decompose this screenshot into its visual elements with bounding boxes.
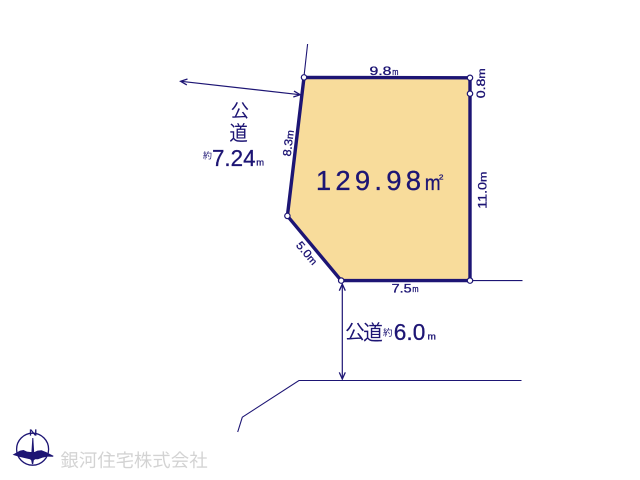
svg-text:m: m xyxy=(428,332,436,343)
svg-text:11.0m: 11.0m xyxy=(478,172,490,209)
svg-text:7.5: 7.5 xyxy=(392,283,412,295)
svg-text:129.98: 129.98 xyxy=(316,165,425,196)
svg-text:7.24: 7.24 xyxy=(212,145,256,171)
svg-text:N: N xyxy=(29,428,37,438)
svg-text:9.8: 9.8 xyxy=(370,66,392,78)
svg-text:m: m xyxy=(412,284,418,294)
svg-text:m: m xyxy=(392,67,398,77)
svg-text:0.8m: 0.8m xyxy=(476,68,488,98)
svg-text:6.0: 6.0 xyxy=(394,319,426,345)
svg-text:2: 2 xyxy=(439,172,444,181)
svg-text:m: m xyxy=(256,158,264,169)
